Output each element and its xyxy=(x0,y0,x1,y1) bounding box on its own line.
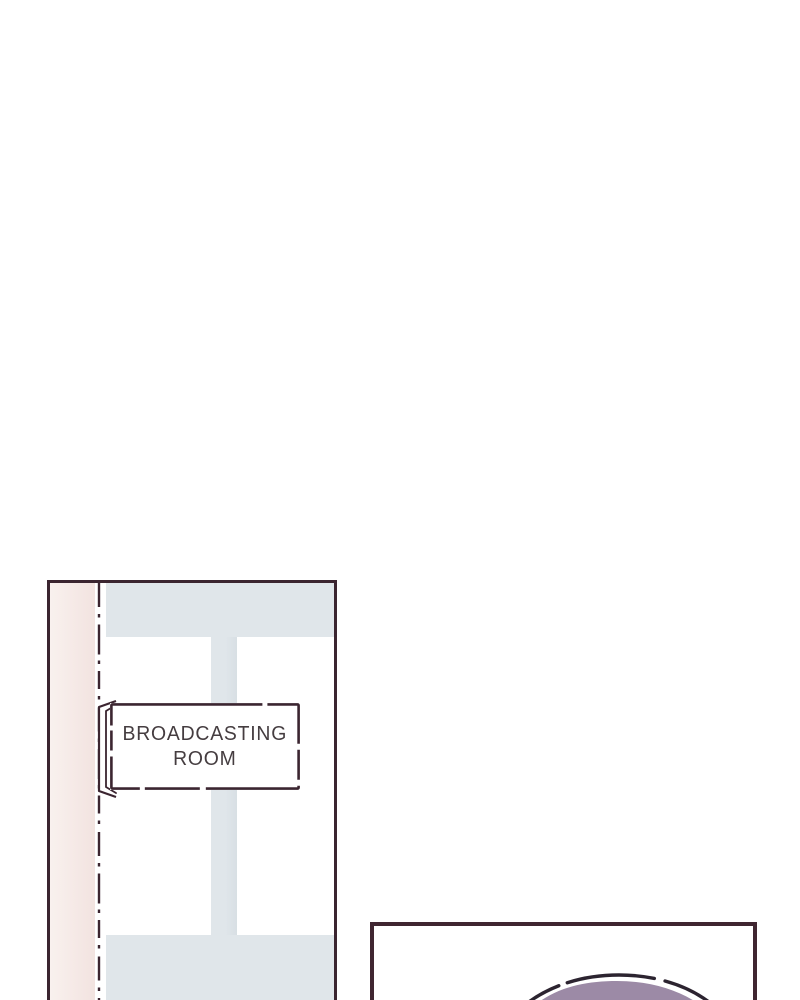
door-frame-wall-strip xyxy=(50,583,95,1000)
broadcasting-room-sign: BROADCASTING ROOM xyxy=(110,703,300,790)
page: BROADCASTING ROOM xyxy=(0,0,800,1000)
character-panel-illustration xyxy=(370,922,757,1000)
door-molding-top xyxy=(106,583,334,637)
character-hair-silhouette xyxy=(374,926,753,1000)
door-molding-bottom xyxy=(106,935,334,1000)
sign-text-line1: BROADCASTING xyxy=(123,722,288,747)
sign-text: BROADCASTING ROOM xyxy=(123,722,288,772)
door-panel-illustration: BROADCASTING ROOM xyxy=(47,580,337,1000)
sign-text-line2: ROOM xyxy=(123,747,288,772)
